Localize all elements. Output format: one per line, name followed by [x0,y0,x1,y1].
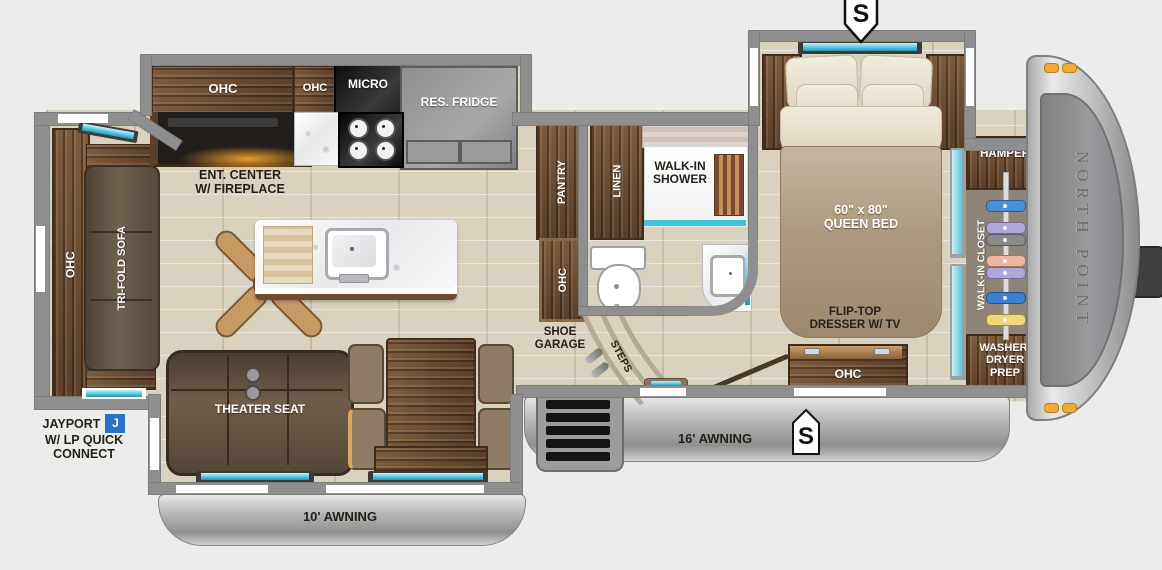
shower-seat [714,154,744,216]
linen-cabinet: LINEN [590,122,644,240]
closet-mirror-1 [950,148,966,258]
kitchen-counter [294,112,340,166]
dinette-bench [374,446,488,472]
walkin-closet-label-wrap: WALK-IN CLOSET [962,190,1002,340]
jayport-line2: W/ LP QUICK [45,433,123,447]
shower-label-1: WALK-IN [644,160,716,173]
jayport-label: JAYPORT J W/ LP QUICK CONNECT [12,414,156,461]
wall-bath-bottom [578,306,704,316]
spot-bottom-letter: S [798,423,814,450]
wall-bottom-main [516,385,1036,398]
front-cap: NORTH POINT [1026,55,1140,421]
window-sofa-bottom [86,390,142,397]
shoe-garage-label: SHOE GARAGE [520,326,600,352]
theater-seat-label: THEATER SEAT [169,403,351,416]
window-bed-right [966,48,974,106]
kitchen-ohc-right: OHC [292,64,338,118]
dresser-label-2: DRESSER W/ TV [775,319,935,332]
linen-label: LINEN [611,165,623,198]
marker-light-bottom-2 [1062,403,1077,413]
wall-living-slide-right [510,394,523,494]
brand-label: NORTH POINT [1042,95,1122,385]
spot-top-letter: S [853,0,870,28]
window-living-bottom-2 [326,485,484,493]
wall-bath-left [578,120,588,316]
dresser-ohc-label: OHC [790,368,906,381]
wall-kitchen-slide-top [140,54,532,66]
window-rear-top [58,114,108,123]
awning-16ft-label: 16' AWNING [650,432,780,447]
ent-center-label-1: ENT. CENTER [160,168,320,182]
pantry-label: PANTRY [556,160,568,204]
rear-ohc-label: OHC [64,252,77,279]
marker-light-top-1 [1044,63,1059,73]
walkin-shower: WALK-IN SHOWER [642,120,748,232]
door-opening-2 [794,388,886,396]
closet-mirror-2 [950,264,966,380]
dresser-label: FLIP-TOP DRESSER W/ TV [775,306,935,332]
wall-kitchen-slide-left [140,54,152,116]
dresser-label-1: FLIP-TOP [775,306,935,319]
microwave-label: MICRO [336,78,400,91]
rv-floorplan: 16' AWNING S 10' AWNING OHC TRI-FOLD SOF… [0,0,1162,570]
shoe-garage-label-1: SHOE [520,326,600,339]
res-fridge-label: RES. FRIDGE [402,96,516,109]
tri-fold-sofa: TRI-FOLD SOFA [84,165,160,371]
island-sink [325,228,389,280]
ent-center-label-2: W/ FIREPLACE [160,182,320,196]
dinette-chair-2 [478,344,514,404]
spot-marker-bottom: S [791,408,821,456]
shower-label: WALK-IN SHOWER [644,160,716,187]
stove [338,112,404,168]
window-living-bottom-1 [176,485,268,493]
door-opening-1 [640,388,686,396]
shower-label-2: SHOWER [644,173,716,186]
bed-label: 60" x 80" QUEEN BED [781,203,941,231]
jayport-line3: CONNECT [53,447,115,461]
theater-seat: THEATER SEAT [166,350,354,476]
window-rear-side [36,226,45,292]
steps-label: STEPS [607,339,634,375]
wall-kitchen-slide-right [520,54,532,116]
kitchen-ohc-left-label: OHC [153,82,293,97]
marker-light-bottom-1 [1044,403,1059,413]
bed-name-label: QUEEN BED [781,217,941,231]
bed-size-label: 60" x 80" [781,203,941,217]
ent-center-label: ENT. CENTER W/ FIREPLACE [160,168,320,196]
window-bed-left [750,48,758,106]
wall-top-mid [512,112,760,126]
sofa-label: TRI-FOLD SOFA [116,226,128,310]
kitchen-island [255,220,457,300]
shoe-garage-label-2: GARAGE [520,339,600,352]
spot-marker-top: S [842,0,880,44]
walkin-closet-label: WALK-IN CLOSET [976,220,988,310]
kitchen-ohc-right-label: OHC [295,82,335,94]
marker-light-top-2 [1062,63,1077,73]
kitchen-ohc-left: OHC [150,64,296,118]
steps-label-wrap: STEPS [600,332,640,382]
brand-text: NORTH POINT [1072,151,1092,329]
pantry-ohc-label: OHC [557,268,569,292]
awning-10ft-label: 10' AWNING [278,510,402,525]
jayport-badge: J [105,414,125,433]
dinette-chair-1 [348,344,384,404]
wall-bath-right [748,120,758,252]
jayport-line1: JAYPORT [43,417,101,431]
front-cap-panel: NORTH POINT [1040,93,1124,387]
res-fridge: RES. FRIDGE [400,66,518,170]
